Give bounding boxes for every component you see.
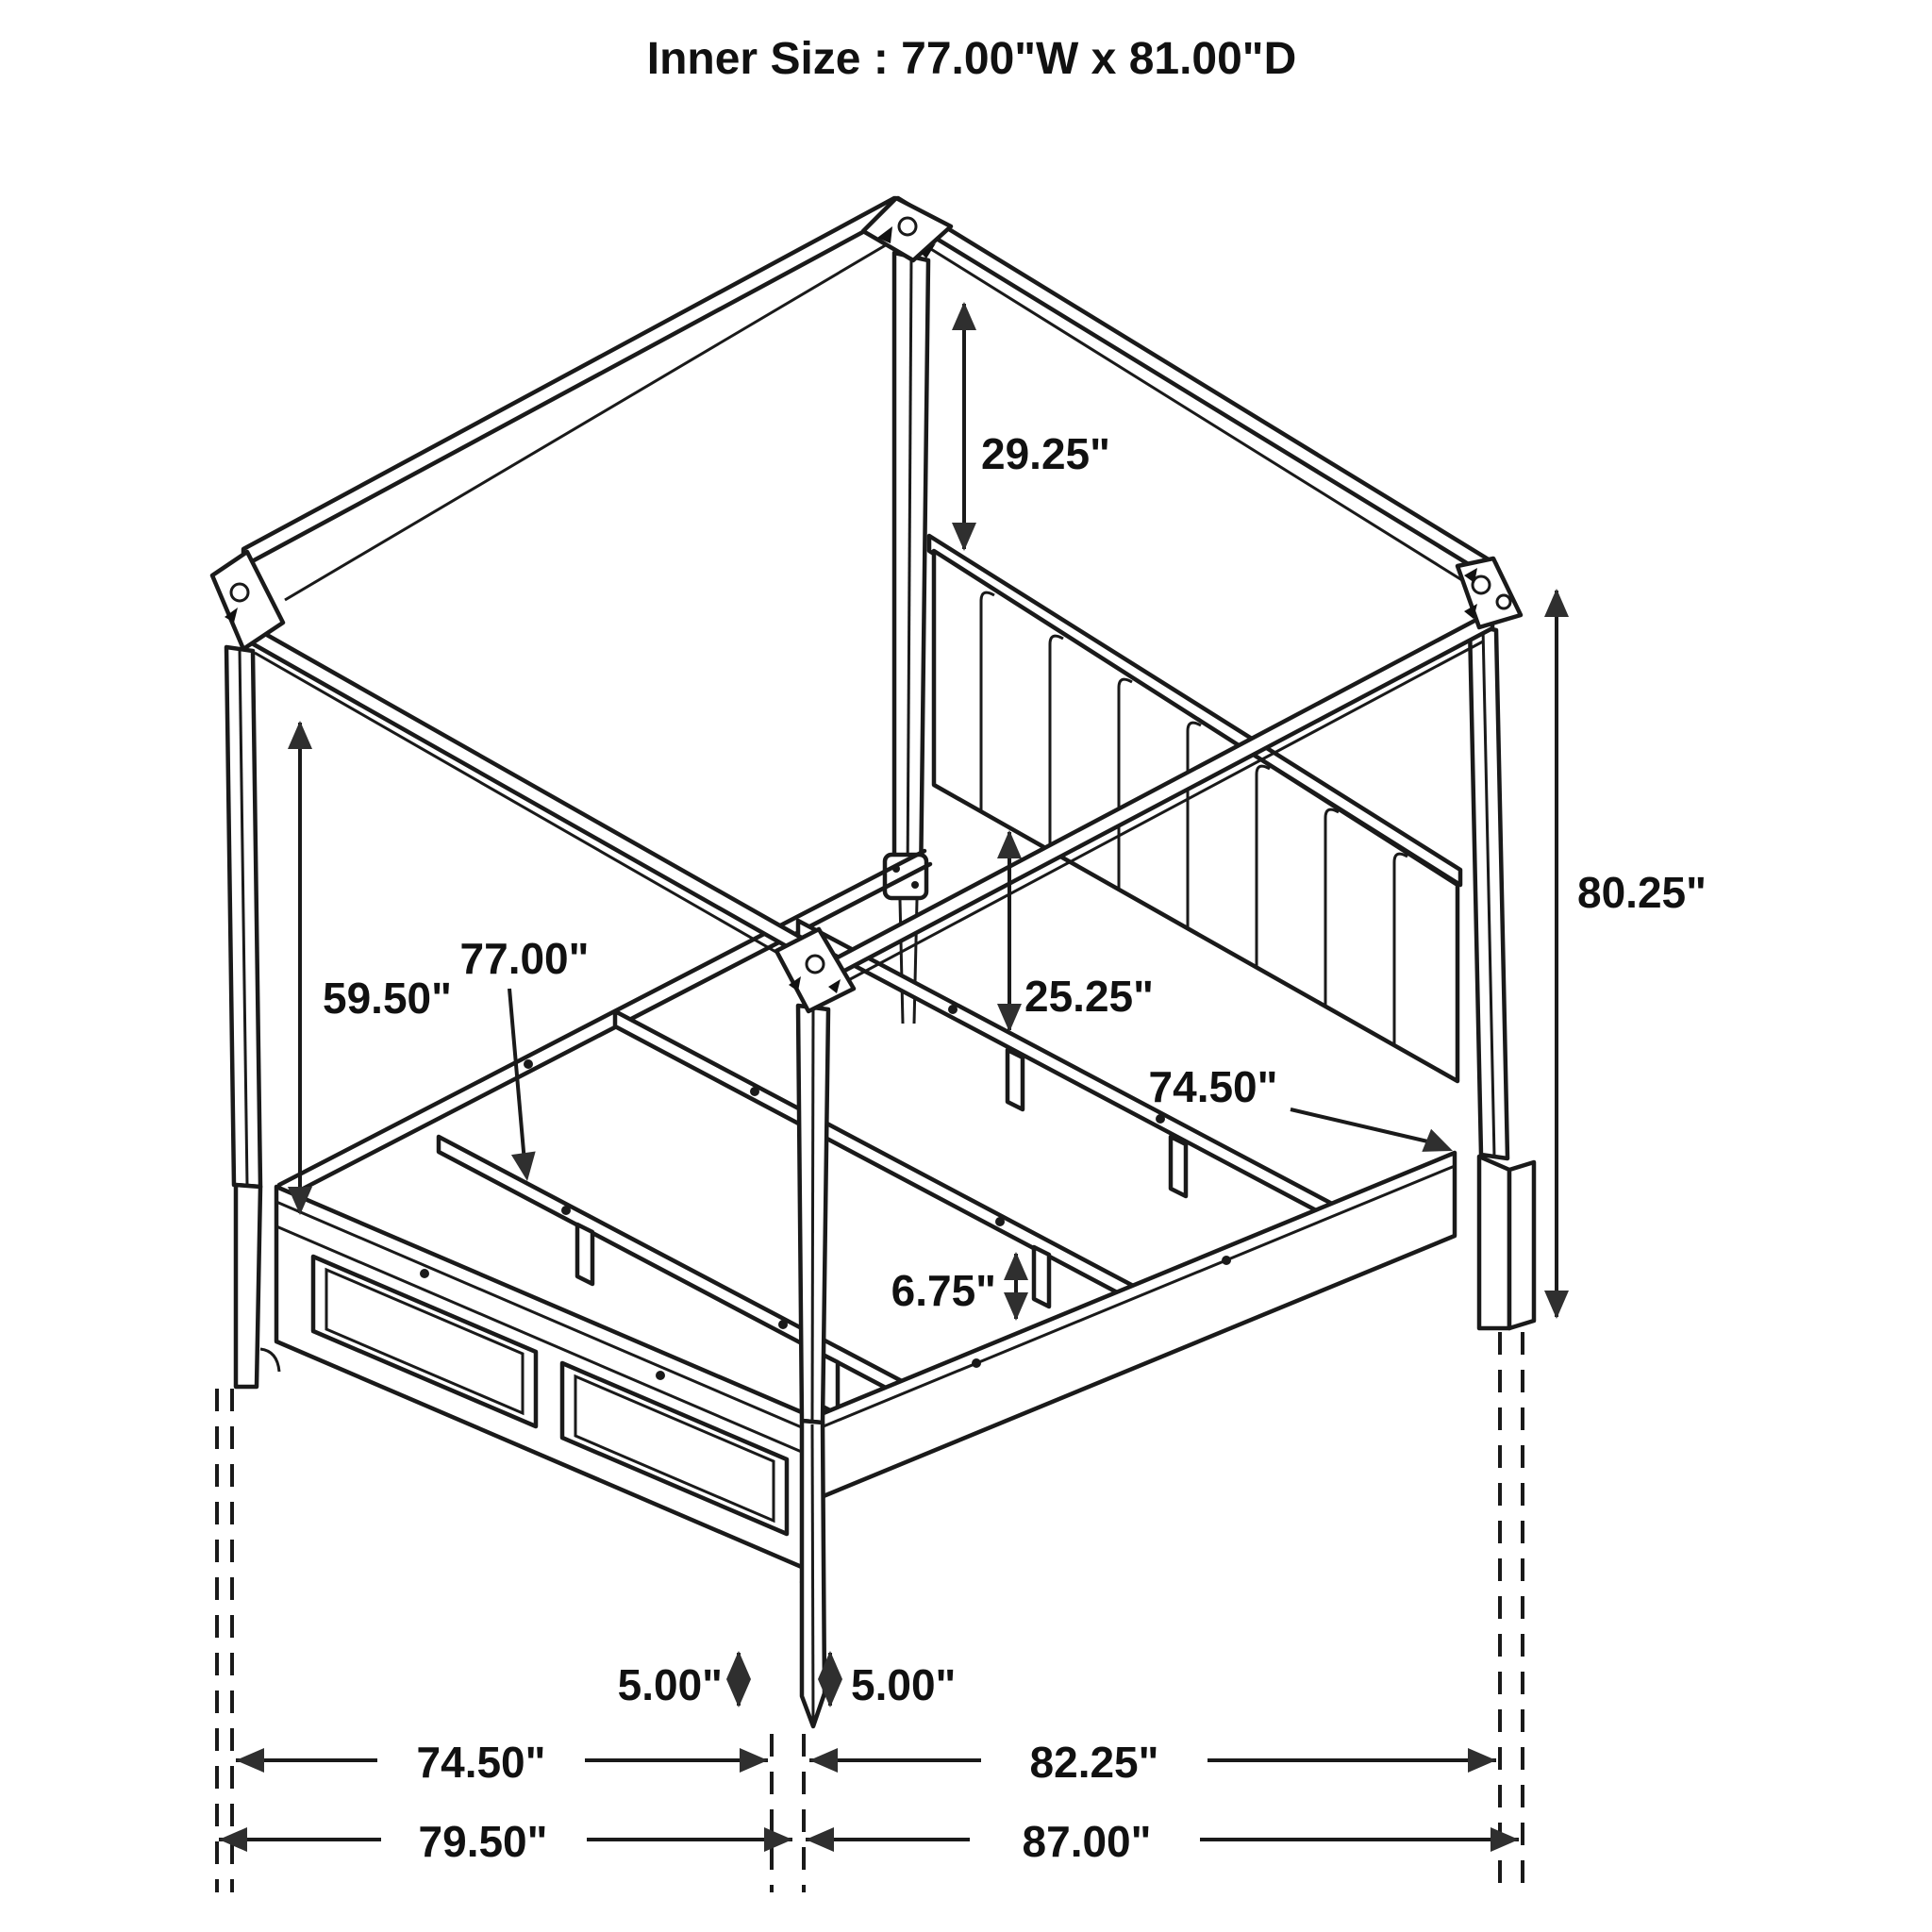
bed-post-back — [885, 253, 928, 1024]
dim-label-leg-right: 5.00" — [851, 1660, 956, 1709]
right-leg-side — [1509, 1162, 1534, 1328]
panel-foot-notch — [260, 1349, 279, 1372]
canopy-frame-back — [243, 198, 1496, 600]
side-rail-front-right — [819, 1153, 1455, 1498]
slat-leg — [1008, 1050, 1023, 1109]
slat-rail-2 — [615, 1011, 1137, 1307]
bed-dimension-diagram: Inner Size : 77.00"W x 81.00"D — [0, 0, 1932, 1932]
bed-post-front — [798, 1006, 828, 1726]
dim-label-slat-leg: 6.75" — [891, 1266, 996, 1315]
dim-label-leg-left: 5.00" — [618, 1660, 723, 1709]
headboard-panel — [934, 551, 1457, 1081]
dim-label-side-rail: 74.50" — [1149, 1062, 1278, 1111]
slat-leg — [1171, 1137, 1186, 1196]
corner-cap-right — [1457, 558, 1521, 627]
bed-post-right — [1470, 625, 1534, 1328]
slat-leg — [1034, 1247, 1049, 1307]
dim-label-clearance: 59.50" — [323, 974, 452, 1023]
dim-label-slat-length: 77.00" — [460, 934, 590, 983]
dim-label-canopy-drop: 29.25" — [981, 429, 1110, 478]
dim-label-floor-74: 74.50" — [417, 1738, 546, 1787]
dim-label-post-height: 80.25" — [1577, 868, 1707, 917]
dim-label-floor-82: 82.25" — [1030, 1738, 1159, 1787]
footboard-drawer-panel — [260, 1187, 817, 1602]
dim-label-floor-87: 87.00" — [1023, 1817, 1152, 1866]
right-leg — [1479, 1157, 1509, 1328]
dim-label-headboard-gap: 25.25" — [1024, 972, 1154, 1021]
slat-leg — [577, 1224, 592, 1284]
bed-post-left — [226, 647, 260, 1387]
dim-label-floor-79: 79.50" — [419, 1817, 548, 1866]
diagram-title: Inner Size : 77.00"W x 81.00"D — [647, 34, 1296, 84]
diagram-page: Inner Size : 77.00"W x 81.00"D — [0, 0, 1932, 1932]
corner-cap-left — [212, 552, 283, 649]
left-leg — [236, 1185, 260, 1387]
deck-rail-back-left — [279, 851, 930, 1198]
